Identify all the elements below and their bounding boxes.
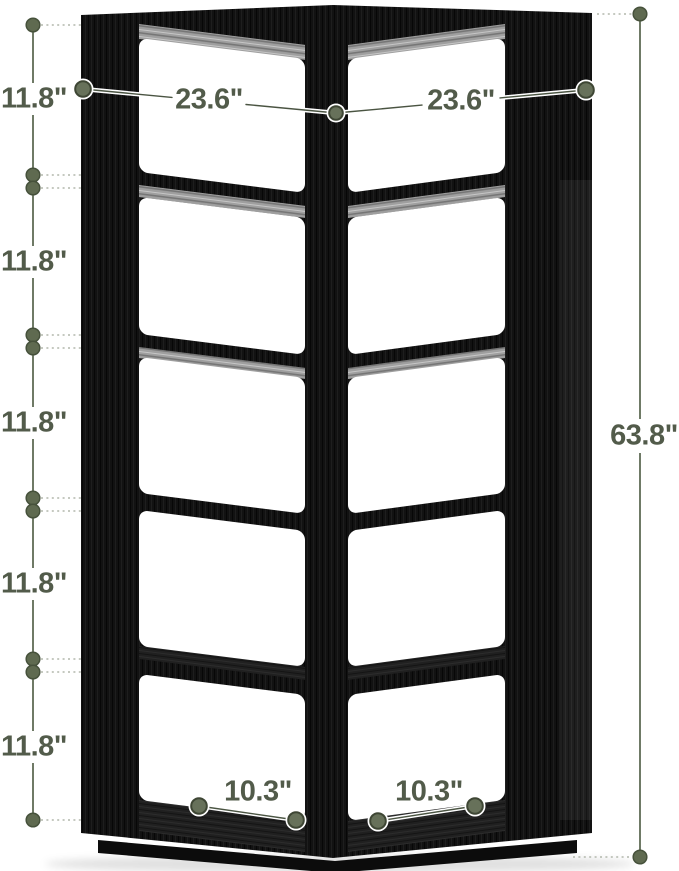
dimension-marker-icon bbox=[576, 80, 597, 101]
dimension-label-height-4: 11.8" bbox=[1, 568, 67, 601]
right-wing bbox=[348, 24, 505, 852]
dimension-marker-icon bbox=[189, 796, 210, 817]
dimension-label-depth-right: 10.3" bbox=[395, 776, 463, 809]
dimension-label-height-3: 11.8" bbox=[1, 407, 67, 440]
left-wing bbox=[139, 24, 305, 852]
dimension-label-total-height: 63.8" bbox=[610, 420, 678, 453]
shelf-cubby bbox=[348, 510, 505, 667]
product-dimension-figure: 11.8" 11.8" 11.8" 11.8" 11.8" 23.6" 23.6… bbox=[0, 0, 679, 871]
dimension-label-width-right: 23.6" bbox=[427, 85, 495, 118]
shelf-cubby bbox=[348, 197, 505, 355]
shelf-cubby bbox=[139, 357, 305, 514]
dimension-label-height-2: 11.8" bbox=[1, 246, 67, 279]
dimension-label-depth-left: 10.3" bbox=[224, 776, 292, 809]
dimension-marker-icon bbox=[73, 79, 94, 100]
dimension-label-width-left: 23.6" bbox=[175, 84, 243, 117]
dimension-marker-icon bbox=[465, 796, 486, 817]
dimension-label-height-1: 11.8" bbox=[1, 83, 67, 116]
dimension-marker-icon bbox=[286, 810, 307, 831]
dimension-label-height-5: 11.8" bbox=[1, 731, 67, 764]
bookshelf-illustration bbox=[0, 0, 679, 871]
panel-highlight bbox=[560, 180, 592, 820]
shelf-cubby bbox=[348, 357, 505, 514]
shelf-cubby bbox=[139, 197, 305, 355]
shelf-cubby bbox=[139, 510, 305, 667]
corner-bookshelf bbox=[45, 5, 635, 871]
dimension-marker-icon bbox=[327, 104, 346, 123]
dimension-marker-icon bbox=[368, 811, 389, 832]
